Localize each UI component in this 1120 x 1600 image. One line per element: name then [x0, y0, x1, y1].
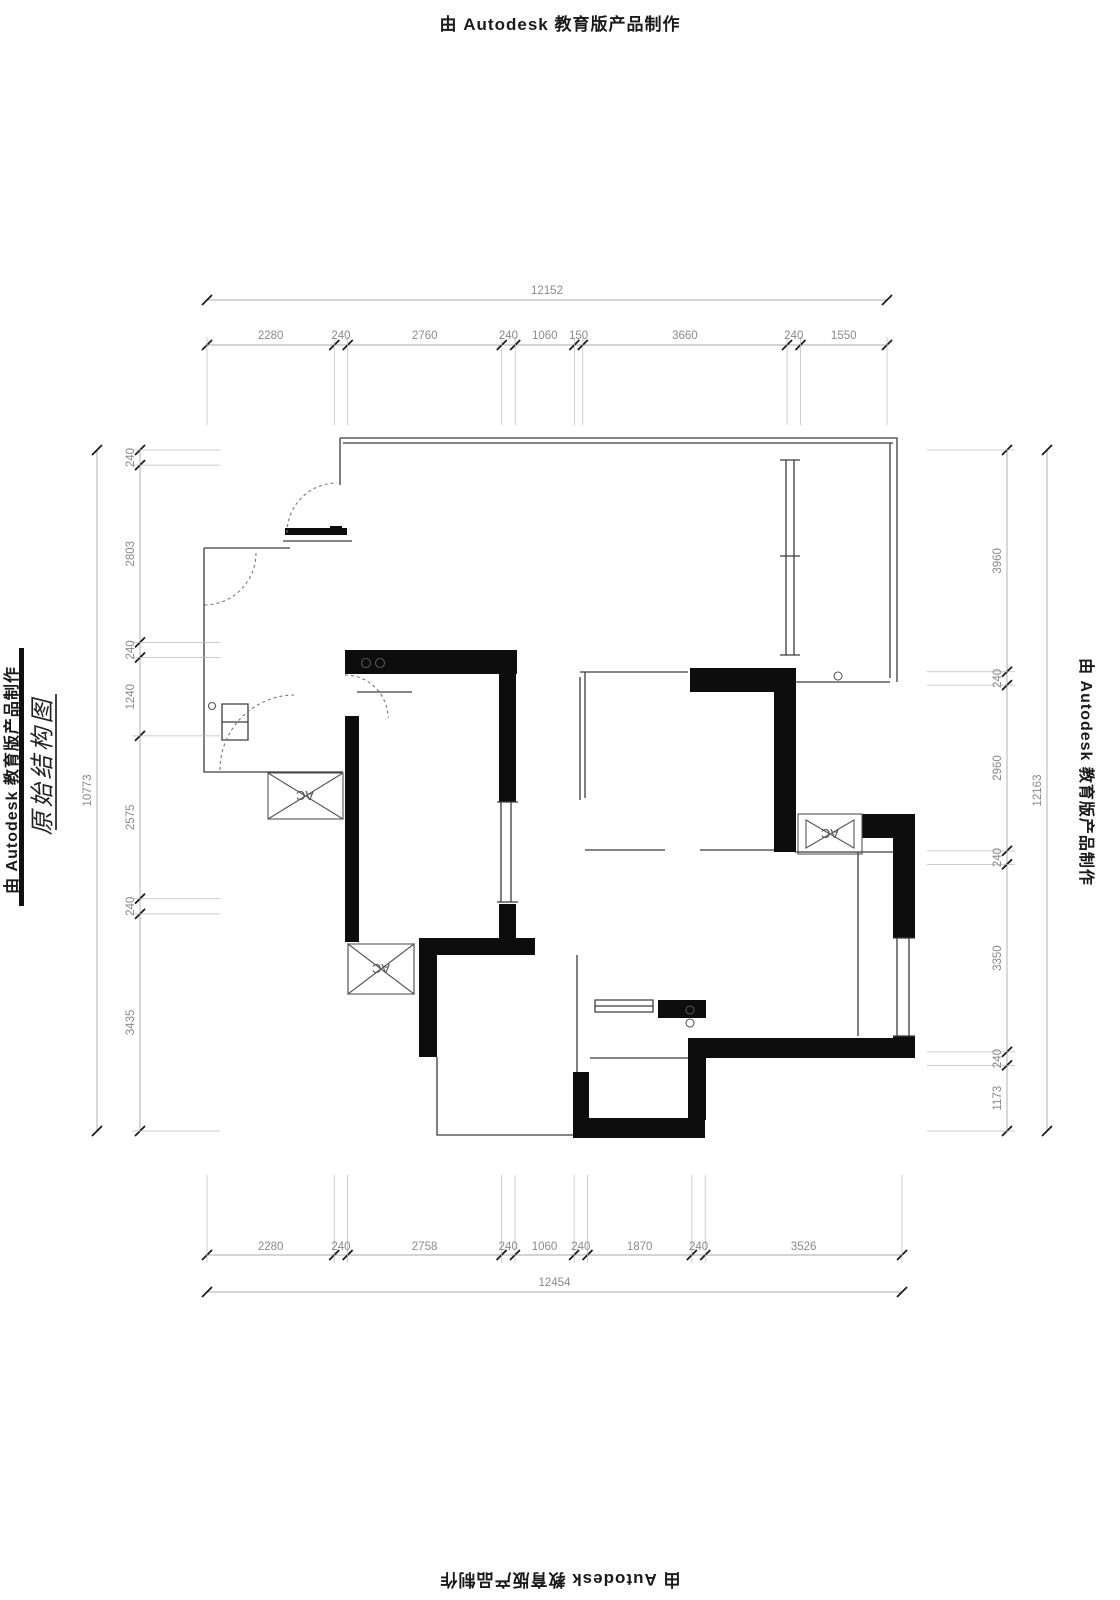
dim-label: 2280	[258, 330, 284, 342]
bath-door-arc	[345, 675, 388, 718]
entry-door-arc	[287, 483, 337, 533]
dim-label: 1240	[125, 684, 137, 710]
dim-label: 2803	[125, 541, 137, 567]
cad-sheet: 由 Autodesk 教育版产品制作 由 Autodesk 教育版产品制作 由 …	[0, 0, 1120, 1600]
dimension-chains: 2280240276024010601503660240155022802402…	[82, 285, 1052, 1297]
dim-label: 12454	[539, 1277, 572, 1289]
dim-label: 240	[125, 897, 137, 916]
door-arcs	[204, 483, 388, 770]
dim-label: 240	[499, 330, 518, 342]
dim-label: 3526	[791, 1241, 817, 1253]
dim-label: 2760	[412, 330, 438, 342]
dim-label: 240	[125, 640, 137, 659]
ac-label: AC	[296, 788, 314, 803]
dim-label: 240	[331, 1241, 350, 1253]
ac-box-left: AC	[268, 773, 343, 819]
partition-walls	[204, 438, 915, 1135]
dim-label: 150	[569, 330, 588, 342]
hinge-circle	[686, 1019, 694, 1027]
hinge-circle	[209, 703, 216, 710]
dim-label: 12152	[531, 285, 563, 297]
dim-label: 10773	[82, 775, 94, 807]
dim-label: 2758	[412, 1241, 438, 1253]
dim-label: 240	[992, 669, 1004, 688]
ac-box-bottom: AC	[348, 944, 414, 994]
dim-label: 2575	[125, 805, 137, 831]
dim-label: 1173	[992, 1086, 1004, 1111]
kitchen-upper-arc	[204, 553, 256, 605]
dim-label: 1870	[627, 1241, 653, 1253]
kitchen-door-arc	[220, 695, 295, 770]
dim-label: 240	[499, 1241, 518, 1253]
dim-label: 2960	[992, 755, 1004, 781]
ac-label: AC	[372, 961, 390, 976]
dim-label: 240	[689, 1241, 708, 1253]
ac-box-right: AC	[798, 814, 862, 854]
dim-label: 1060	[532, 1241, 558, 1253]
dim-label: 240	[992, 848, 1004, 867]
dim-label: 3435	[125, 1010, 137, 1036]
structural-walls	[285, 526, 915, 1138]
floor-plan: AC AC AC 2280240276024010601503660240155…	[0, 0, 1120, 1600]
dim-label: 240	[571, 1241, 590, 1253]
dim-label: 3960	[992, 548, 1004, 574]
ac-label: AC	[821, 826, 839, 841]
dim-label: 1060	[532, 330, 558, 342]
dim-label: 240	[784, 330, 803, 342]
dim-label: 12163	[1032, 775, 1044, 807]
dim-label: 240	[331, 330, 350, 342]
dim-label: 240	[125, 448, 137, 467]
dim-label: 3660	[672, 330, 698, 342]
dim-label: 1550	[831, 330, 857, 342]
fixtures	[209, 659, 843, 1028]
dim-label: 2280	[258, 1241, 284, 1253]
dim-label: 240	[992, 1049, 1004, 1068]
dim-label: 3350	[992, 945, 1004, 971]
hinge-circle	[834, 672, 842, 680]
